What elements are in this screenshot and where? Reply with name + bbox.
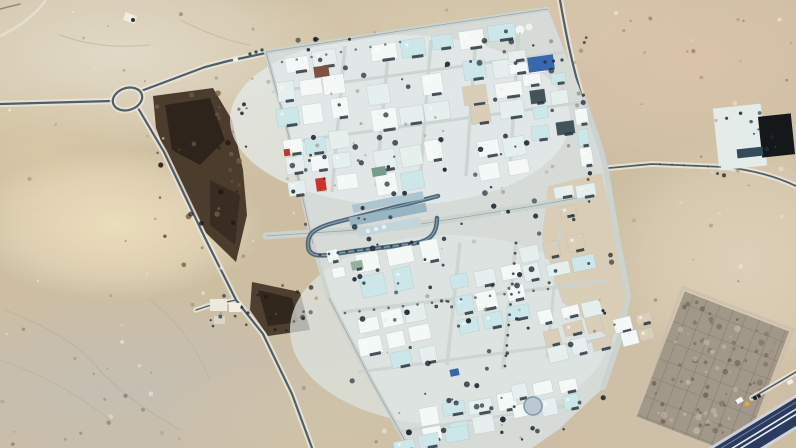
satellite-scene-canvas: [0, 0, 796, 448]
brightness-wash: [0, 0, 796, 448]
satellite-view: [0, 0, 796, 448]
